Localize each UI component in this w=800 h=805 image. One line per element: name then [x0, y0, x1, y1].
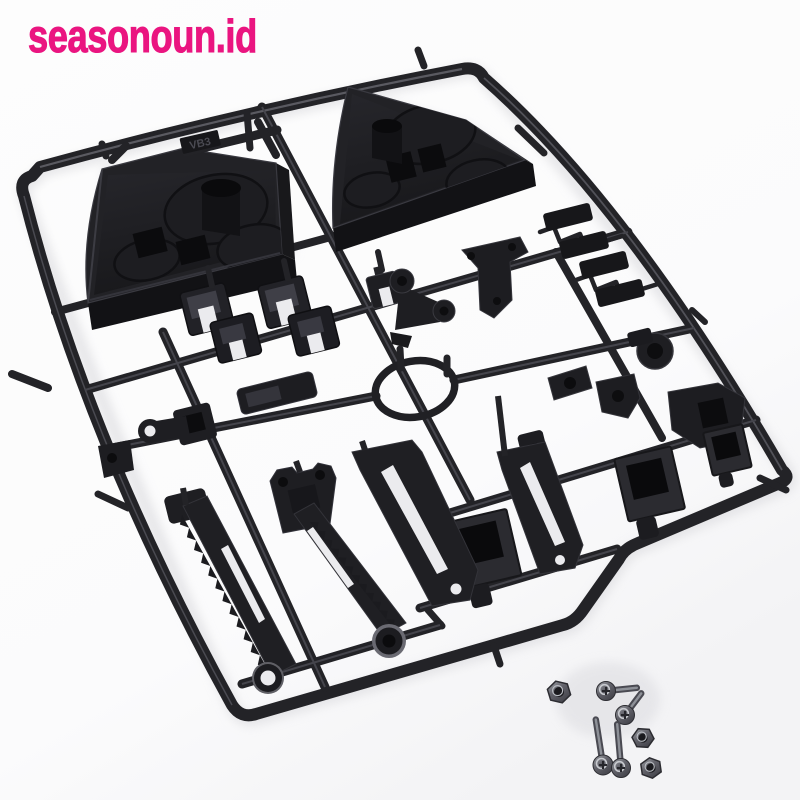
svg-text:seasonoun.id: seasonoun.id: [28, 11, 257, 62]
